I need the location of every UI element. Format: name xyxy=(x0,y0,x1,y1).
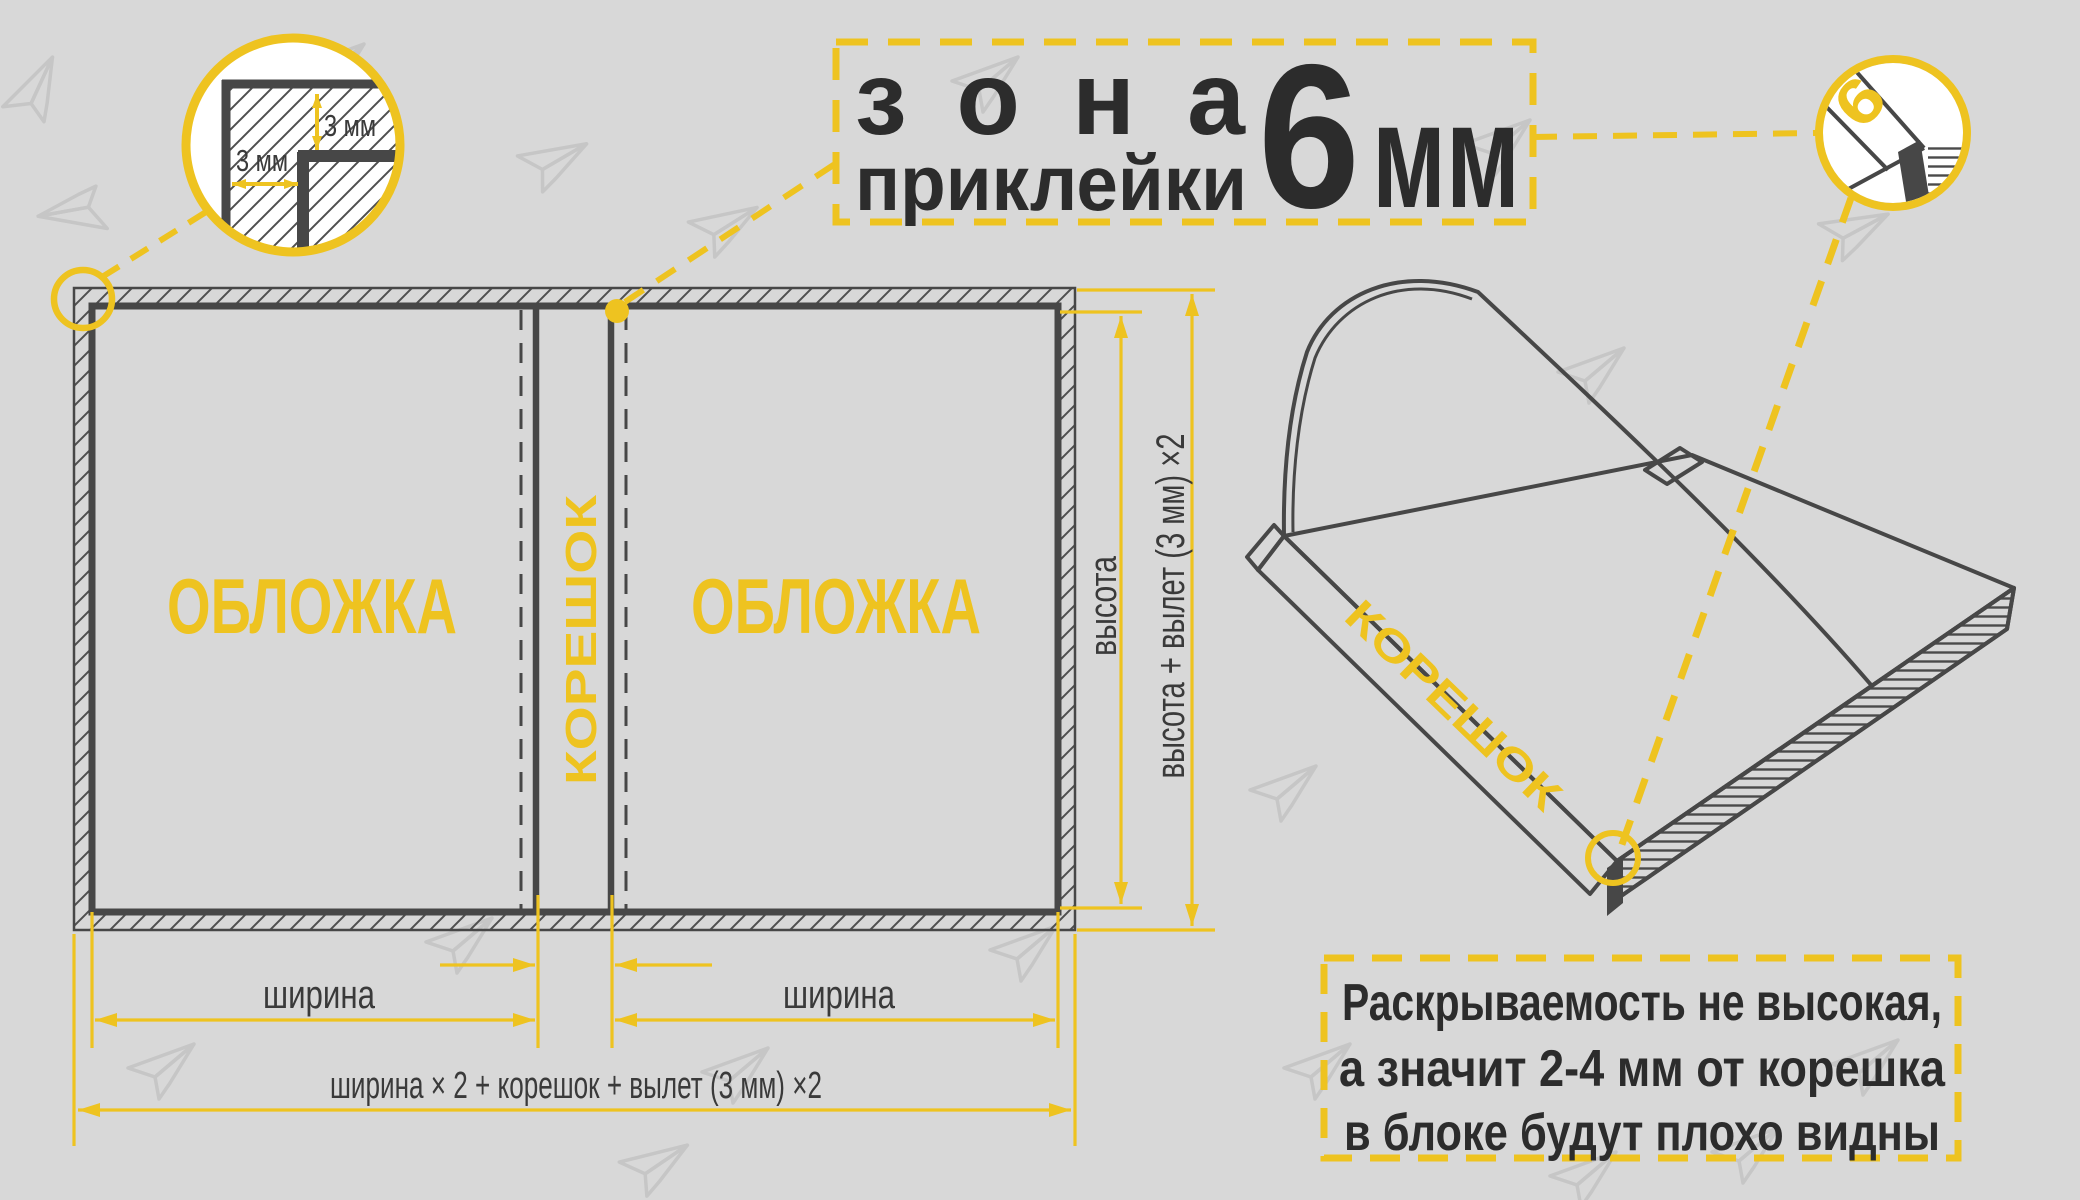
height-bleed-label: высота + вылет (3 мм) ×2 xyxy=(1149,434,1193,779)
title-word2: приклейки xyxy=(855,139,1247,227)
title-number: 6 xyxy=(1258,22,1360,251)
height-label: высота xyxy=(1083,555,1125,656)
title-to-magnifier-connector xyxy=(1533,133,1817,137)
bleed-3mm-label-vertical: 3 мм xyxy=(324,108,376,143)
note-line-2: а значит 2-4 мм от корешка xyxy=(1339,1040,1946,1098)
note-line-1: Раскрываемость не высокая, xyxy=(1342,974,1942,1032)
total-width-label: ширина × 2 + корешок + вылет (3 мм) ×2 xyxy=(330,1065,822,1107)
note-box: Раскрываемость не высокая, а значит 2-4 … xyxy=(1324,958,1958,1162)
spine-label: КОРЕШОК xyxy=(557,495,606,785)
cover-right-label: ОБЛОЖКА xyxy=(691,562,981,650)
cover-left-label: ОБЛОЖКА xyxy=(167,562,457,650)
bleed-3mm-label-horizontal: 3 мм xyxy=(236,143,288,178)
infographic-poster: ОБЛОЖКА ОБЛОЖКА КОРЕШОК высота высота + … xyxy=(0,0,2080,1200)
title-unit: мм xyxy=(1372,71,1520,239)
diagram-canvas: ОБЛОЖКА ОБЛОЖКА КОРЕШОК высота высота + … xyxy=(0,0,2080,1200)
width-right-label: ширина xyxy=(783,973,896,1017)
note-line-3: в блоке будут плохо видны xyxy=(1344,1104,1940,1162)
width-left-label: ширина xyxy=(263,973,376,1017)
